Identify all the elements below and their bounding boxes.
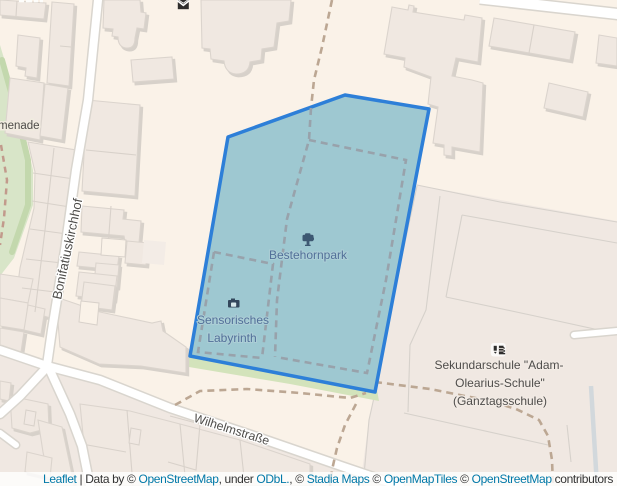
svg-text:Olearius-Schule": Olearius-Schule": [455, 376, 545, 390]
svg-text:Bestehornpark: Bestehornpark: [269, 248, 348, 262]
svg-text:Labyrinth: Labyrinth: [207, 331, 256, 345]
svg-text:menade: menade: [0, 120, 40, 132]
svg-text:Sensorisches: Sensorisches: [197, 313, 269, 327]
svg-text:Sekundarschule "Adam-: Sekundarschule "Adam-: [435, 358, 564, 372]
svg-text:(Ganztagsschule): (Ganztagsschule): [453, 394, 547, 408]
